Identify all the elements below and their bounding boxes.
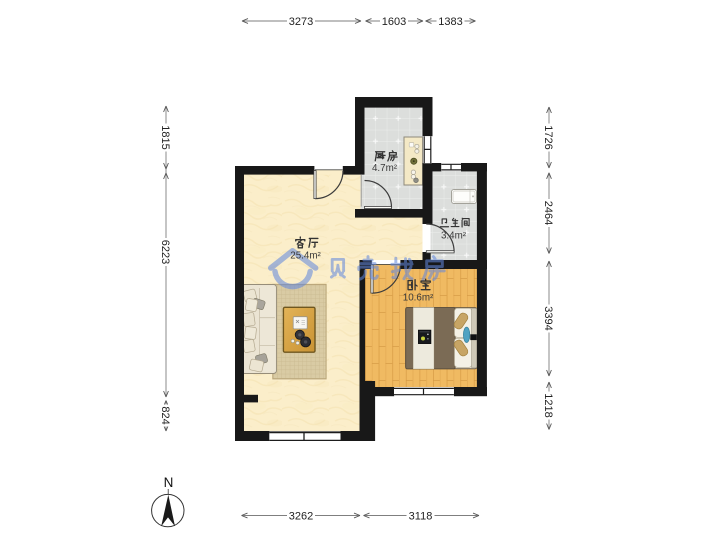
svg-text:3273: 3273 bbox=[289, 16, 313, 28]
svg-text:4.7m²: 4.7m² bbox=[372, 163, 398, 174]
svg-text:3262: 3262 bbox=[289, 511, 313, 523]
svg-text:1383: 1383 bbox=[438, 16, 462, 28]
svg-text:1726: 1726 bbox=[542, 125, 554, 149]
svg-text:3394: 3394 bbox=[542, 306, 554, 330]
svg-text:1218: 1218 bbox=[542, 393, 554, 417]
svg-text:1815: 1815 bbox=[159, 125, 171, 149]
svg-text:10.6m²: 10.6m² bbox=[403, 292, 434, 303]
svg-text:N: N bbox=[164, 475, 174, 490]
svg-text:3118: 3118 bbox=[409, 511, 433, 523]
svg-text:3.4m²: 3.4m² bbox=[441, 230, 467, 241]
svg-text:1603: 1603 bbox=[382, 16, 406, 28]
svg-text:2464: 2464 bbox=[542, 201, 554, 225]
svg-text:824: 824 bbox=[159, 406, 171, 424]
svg-text:6223: 6223 bbox=[159, 240, 171, 264]
svg-text:25.4m²: 25.4m² bbox=[290, 251, 321, 262]
